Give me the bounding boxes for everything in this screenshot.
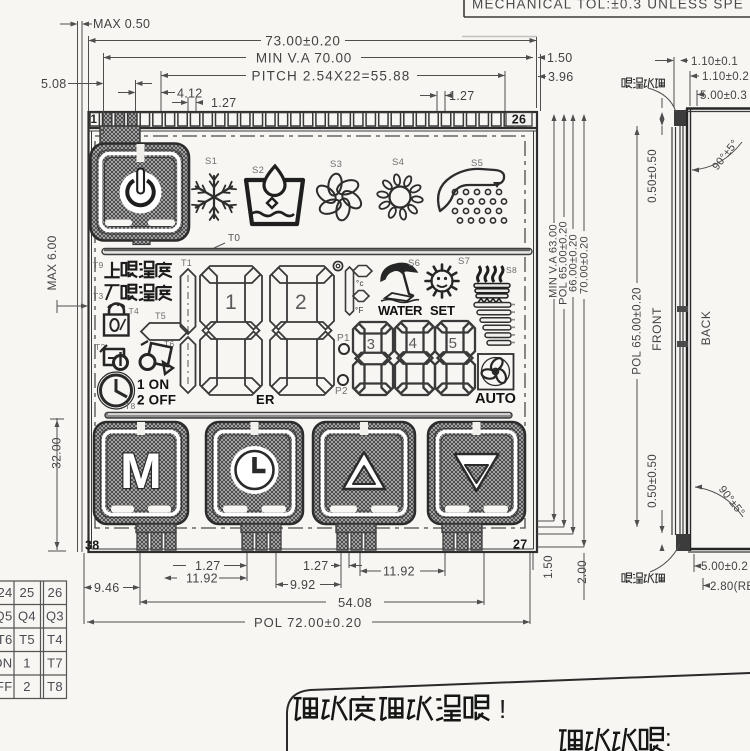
svg-text:27: 27	[513, 538, 528, 552]
svg-text:MAX 0.50: MAX 0.50	[93, 17, 150, 31]
svg-text:5.08: 5.08	[41, 77, 67, 91]
svg-text:70.00±0.20: 70.00±0.20	[579, 236, 591, 294]
svg-text:T0: T0	[228, 233, 240, 244]
svg-text:5: 5	[449, 335, 458, 352]
svg-text:1: 1	[23, 656, 31, 671]
svg-text:0.50±0.50: 0.50±0.50	[647, 149, 659, 203]
svg-text:9.46: 9.46	[94, 581, 120, 595]
svg-text:3: 3	[367, 336, 376, 353]
svg-text:MIN V.A 70.00: MIN V.A 70.00	[256, 51, 352, 66]
svg-text:OFF: OFF	[0, 679, 13, 694]
svg-text:1.50: 1.50	[543, 555, 555, 579]
svg-text:25: 25	[19, 585, 34, 600]
svg-text:T4: T4	[47, 632, 63, 647]
svg-text:9.92: 9.92	[290, 578, 316, 592]
svg-text:Q4: Q4	[18, 609, 36, 624]
svg-text:P1: P1	[337, 333, 350, 344]
svg-text:2.80(REF): 2.80(REF)	[710, 581, 750, 593]
svg-text:5.00±0.2: 5.00±0.2	[701, 561, 748, 573]
svg-text:4.12: 4.12	[177, 87, 203, 101]
svg-text:!: !	[499, 694, 507, 724]
svg-text:T5: T5	[19, 632, 35, 647]
svg-text:1.10±0.2: 1.10±0.2	[702, 71, 749, 83]
svg-text:26: 26	[512, 113, 527, 127]
svg-text:11.92: 11.92	[383, 565, 415, 579]
svg-text:1 ON: 1 ON	[137, 377, 169, 392]
svg-text:1.27: 1.27	[449, 89, 475, 103]
svg-text:FRONT: FRONT	[650, 307, 664, 351]
svg-text:WATER: WATER	[378, 303, 423, 318]
svg-text:4: 4	[409, 335, 418, 352]
svg-text:S7: S7	[458, 256, 470, 267]
svg-text:2 OFF: 2 OFF	[137, 393, 176, 408]
svg-text:ON: ON	[0, 656, 13, 671]
svg-text:1: 1	[91, 114, 98, 126]
svg-text:Q5: Q5	[0, 609, 13, 624]
svg-text:1: 1	[225, 291, 237, 314]
svg-text:ER: ER	[256, 392, 275, 407]
svg-text:S2: S2	[252, 165, 264, 176]
svg-text:1.50: 1.50	[547, 51, 573, 65]
svg-text:T8: T8	[47, 679, 63, 694]
svg-text:2: 2	[23, 679, 31, 694]
svg-text:26: 26	[47, 585, 62, 600]
svg-text:0.50±0.50: 0.50±0.50	[647, 454, 659, 508]
svg-text:73.00±0.20: 73.00±0.20	[265, 34, 340, 49]
svg-text:S1: S1	[205, 156, 217, 167]
svg-text:SET: SET	[430, 303, 455, 318]
svg-text:2: 2	[295, 291, 307, 314]
svg-text:S3: S3	[330, 159, 342, 170]
svg-text:S5: S5	[471, 158, 483, 169]
svg-text:T7: T7	[47, 656, 63, 671]
svg-text:54.08: 54.08	[338, 595, 372, 610]
svg-text:MAX 6.00: MAX 6.00	[45, 235, 59, 290]
svg-text:T9: T9	[93, 260, 104, 270]
svg-text:S8: S8	[506, 265, 517, 275]
svg-text:1.27: 1.27	[303, 559, 329, 573]
svg-text:M: M	[120, 443, 162, 499]
svg-text:24: 24	[0, 585, 13, 600]
svg-text:PITCH 2.54X22=55.88: PITCH 2.54X22=55.88	[251, 69, 410, 84]
svg-text:1.10±0.1: 1.10±0.1	[691, 56, 738, 68]
svg-text:T6: T6	[0, 632, 13, 647]
svg-text:S4: S4	[392, 157, 404, 168]
svg-text:5.00±0.3: 5.00±0.3	[700, 90, 747, 102]
svg-text:Q3: Q3	[46, 609, 64, 624]
svg-text:38: 38	[85, 539, 100, 553]
svg-text:T4: T4	[129, 306, 140, 316]
svg-text:BACK: BACK	[699, 311, 713, 346]
svg-text:T8: T8	[125, 401, 136, 411]
svg-text:S6: S6	[408, 258, 420, 269]
svg-text:3.96: 3.96	[548, 70, 574, 84]
svg-text::: :	[665, 725, 672, 751]
svg-text:°F: °F	[355, 306, 364, 315]
svg-text:T1: T1	[181, 258, 192, 268]
svg-text:POL 72.00±0.20: POL 72.00±0.20	[254, 615, 362, 630]
svg-text:°c: °c	[356, 279, 364, 288]
svg-text:1.27: 1.27	[211, 96, 237, 110]
svg-text:2.00: 2.00	[577, 560, 589, 584]
svg-text:POL 65.00±0.20: POL 65.00±0.20	[632, 287, 644, 374]
svg-text:11.92: 11.92	[186, 572, 218, 586]
svg-text:AUTO: AUTO	[475, 391, 516, 407]
svg-text:T5: T5	[155, 311, 166, 321]
svg-text:P2: P2	[335, 386, 348, 397]
svg-text:T3: T3	[93, 291, 104, 301]
svg-text:MECHANICAL TOL:±0.3 UNLESS SPE: MECHANICAL TOL:±0.3 UNLESS SPE	[472, 0, 744, 12]
